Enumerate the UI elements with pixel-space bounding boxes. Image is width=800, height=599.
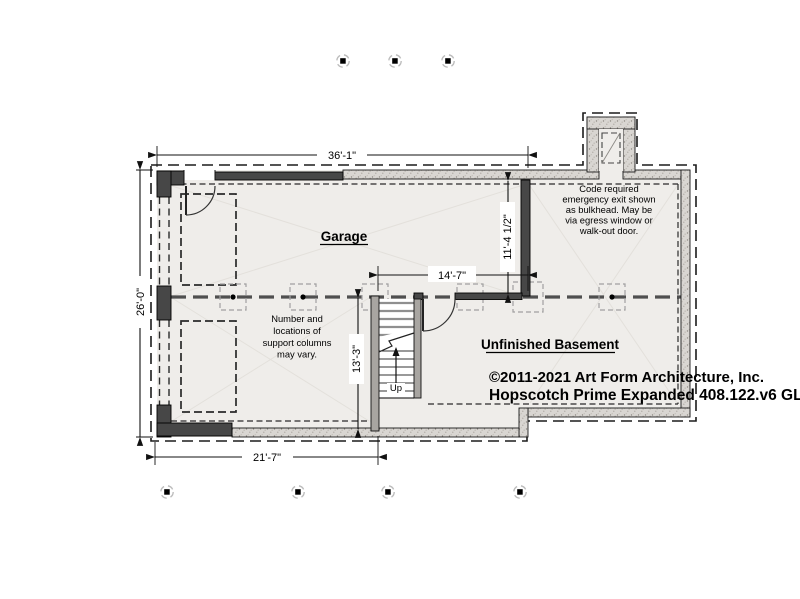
stair-wall-right xyxy=(414,299,421,398)
dim-top-label: 36'-1" xyxy=(328,150,356,162)
basement-label: Unfinished Basement xyxy=(481,337,620,352)
bulkhead xyxy=(587,117,635,172)
garage-label: Garage xyxy=(321,229,368,244)
bulkhead-note-line: walk-out door. xyxy=(579,225,638,236)
dim-bottom-label: 21'-7" xyxy=(253,452,281,464)
dim-stair-depth-label: 13'-3" xyxy=(351,345,363,373)
bulkhead-note-line: emergency exit shown xyxy=(562,194,655,205)
dim-basement-depth-label: 11'-4 1/2" xyxy=(502,214,514,260)
bulkhead-note-line: Code required xyxy=(579,183,638,194)
bulkhead-note-line: via egress window or xyxy=(565,215,653,226)
dim-interior-width-label: 14'-7" xyxy=(438,270,466,282)
registration-mark xyxy=(337,55,349,67)
registration-mark xyxy=(292,486,304,498)
columns-note-line: Number and xyxy=(271,313,323,324)
copyright-text: ©2011-2021 Art Form Architecture, Inc. xyxy=(489,369,764,386)
registration-mark xyxy=(161,486,173,498)
title-block: ©2011-2021 Art Form Architecture, Inc. H… xyxy=(489,369,800,404)
dim-left-label: 26'-0" xyxy=(135,288,147,316)
registration-mark xyxy=(389,55,401,67)
bulkhead-note-line: as bulkhead. May be xyxy=(566,204,653,215)
registration-mark xyxy=(382,486,394,498)
columns-note-line: may vary. xyxy=(277,349,317,360)
registration-mark xyxy=(514,486,526,498)
floor-plan-svg: Up xyxy=(0,0,800,599)
plan-name-text: Hopscotch Prime Expanded 408.122.v6 GL xyxy=(489,387,800,404)
stair-up-label: Up xyxy=(390,383,402,394)
columns-note-line: support columns xyxy=(263,337,332,348)
stair-wall-left xyxy=(371,296,379,431)
floor-plan-page: Up xyxy=(0,0,800,599)
columns-note-line: locations of xyxy=(273,325,321,336)
registration-mark xyxy=(442,55,454,67)
